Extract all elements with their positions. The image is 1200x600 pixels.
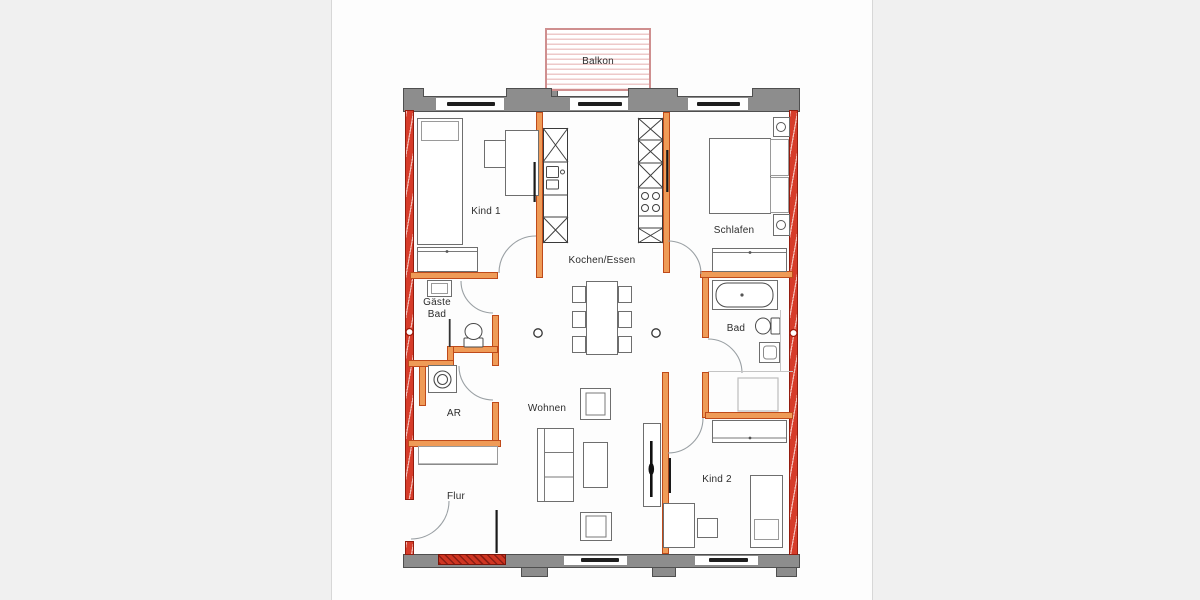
room-label-flur: Flur	[447, 491, 465, 503]
wall-exterior-left-stub	[405, 541, 414, 555]
duct-ar	[419, 366, 426, 406]
wardrobe-flur	[418, 446, 498, 465]
window-glass-wohnen	[581, 558, 619, 562]
room-label-gaeste-bad: Gäste Bad	[423, 297, 451, 321]
armchair-wohnen-bottom	[580, 512, 612, 541]
washbasin-bad	[759, 342, 780, 363]
floorplan-screenshot: Balkon Kind 1 Kochen/Essen Schlafen Gäst…	[0, 0, 1200, 600]
room-label-kind2: Kind 2	[702, 474, 732, 486]
wall-pier	[521, 567, 548, 577]
window-glass-schlafen	[697, 102, 740, 106]
bathtub-bad	[712, 280, 778, 310]
room-label-schlafen: Schlafen	[714, 225, 755, 237]
blanket-kind2	[754, 519, 779, 540]
wall-bad-west-upper	[702, 277, 709, 338]
window-glass-kind1	[447, 102, 495, 106]
wall-pier	[506, 88, 552, 97]
mattress-schlafen-2	[770, 177, 789, 213]
sideboard-kind1	[417, 247, 478, 272]
dining-chair	[618, 286, 632, 303]
desk-kind2	[663, 503, 695, 548]
room-label-ar: AR	[447, 408, 461, 420]
dining-chair	[618, 336, 632, 353]
room-label-gaeste-bad-line1: Gäste	[423, 297, 451, 309]
chair-kind2	[697, 518, 718, 538]
desk-kind1	[505, 130, 539, 196]
kitchen-counter-right	[638, 118, 663, 243]
room-label-bad: Bad	[727, 323, 745, 335]
dining-chair	[572, 311, 586, 328]
room-label-kochen-essen: Kochen/Essen	[569, 255, 636, 267]
wall-kind1-gaestebad	[410, 272, 498, 279]
entrance-wall-hatched	[438, 554, 506, 565]
dining-chair	[618, 311, 632, 328]
room-label-balkon: Balkon	[582, 56, 614, 68]
mattress-schlafen-1	[770, 139, 789, 176]
dining-table	[586, 281, 618, 355]
window-glass-kind2	[709, 558, 748, 562]
wardrobe-schlafen	[712, 248, 787, 272]
kitchen-counter-left	[543, 128, 568, 243]
wall-gaestebad-ar-right	[447, 346, 498, 353]
armchair-wohnen-top	[580, 388, 611, 420]
balcony-door-glass	[578, 102, 622, 106]
wall-pier	[776, 567, 797, 577]
wall-kitchen-schlafen	[663, 112, 670, 273]
dining-chair	[572, 286, 586, 303]
dining-chair	[572, 336, 586, 353]
wall-exterior-right	[789, 110, 798, 555]
nightstand-schlafen-top	[773, 117, 790, 137]
sofa-wohnen	[537, 428, 574, 502]
wall-pier	[403, 88, 424, 97]
pillow-kind1	[421, 121, 459, 141]
room-label-wohnen: Wohnen	[528, 403, 566, 415]
wall-ar-east-upper	[492, 352, 499, 366]
wall-pier	[652, 567, 676, 577]
room-label-kind1: Kind 1	[471, 206, 501, 218]
wall-pier	[752, 88, 800, 97]
wall-bad-kind2	[705, 412, 793, 419]
washing-machine-ar	[428, 365, 457, 393]
wall-schlafen-bad	[700, 271, 793, 278]
room-label-gaeste-bad-line2: Bad	[423, 309, 451, 321]
nightstand-schlafen-bottom	[773, 214, 790, 236]
bed-schlafen	[709, 138, 771, 214]
washbasin-gaestebad-inner	[431, 283, 448, 294]
tv-board-wohnen	[643, 423, 661, 507]
wall-pier	[628, 88, 678, 97]
wardrobe-kind2	[712, 420, 787, 443]
coffee-table-wohnen	[583, 442, 608, 488]
